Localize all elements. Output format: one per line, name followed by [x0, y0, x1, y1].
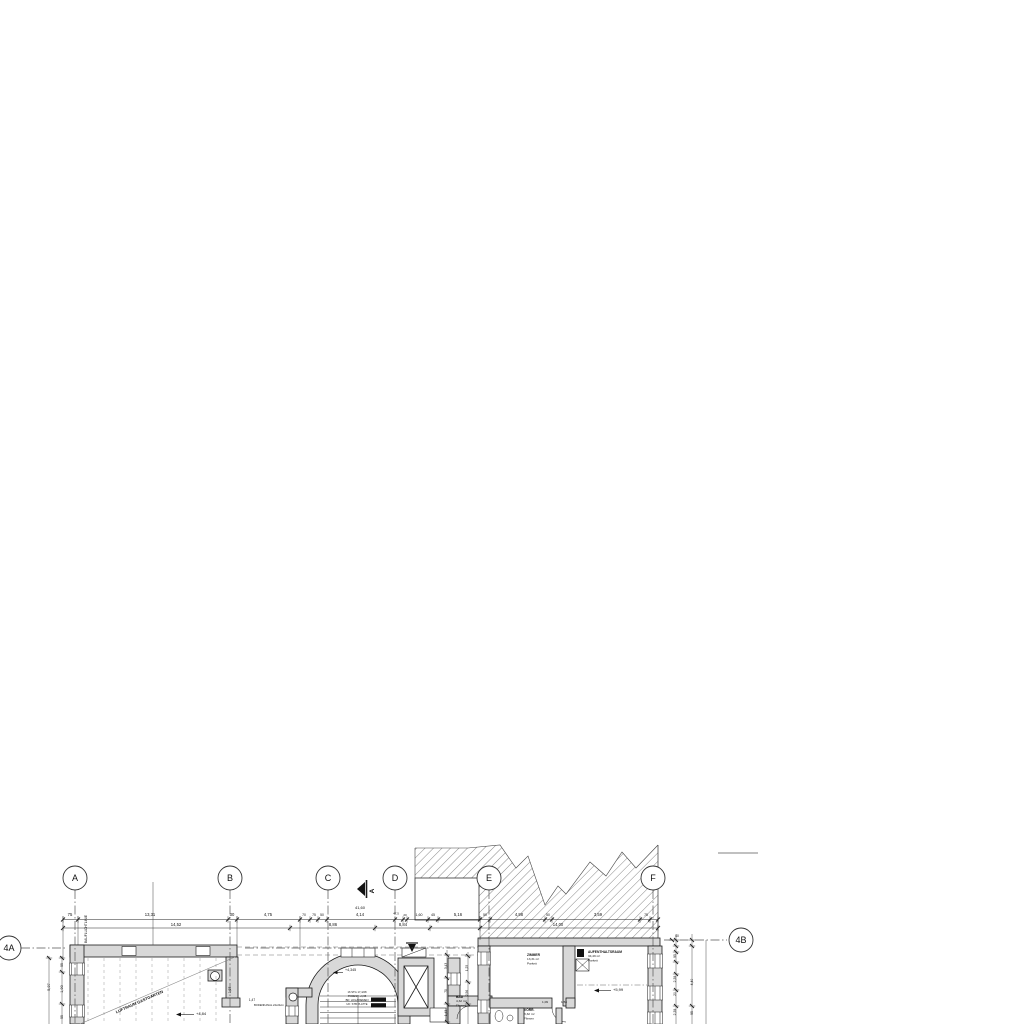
annotation-label: BODENKANAL 24x24cm — [254, 1003, 285, 1007]
building-notch — [415, 878, 479, 920]
annotation-label: LUFTRAUM GASTGARTEN — [115, 989, 164, 1014]
grid-row-4B-label: 4B — [735, 935, 746, 945]
flue — [577, 949, 584, 957]
floor-plan-drawing: 7513,31304,757075504,1447,5201,60455,165… — [0, 0, 1024, 1024]
annotation-label: +4,84 — [196, 1011, 207, 1016]
annotation-label: 55 — [60, 963, 64, 967]
wall-fitting — [122, 947, 136, 956]
column-symbol — [211, 972, 220, 981]
room-floor: Fliesen — [456, 1003, 466, 1007]
annotation-label: BD: HOLZRIEMEN — [346, 998, 369, 1002]
annotation-label: 20 — [403, 913, 407, 917]
right-wing — [478, 938, 663, 1024]
annotation-label: 1,47 — [249, 998, 255, 1002]
annotation-label: 4,98 — [515, 912, 524, 917]
annotation-label: 4,14 — [356, 912, 365, 917]
annotation-label: +5,99 — [613, 987, 624, 992]
grid-column-E-label: E — [486, 873, 492, 883]
annotation-label: 13,31 — [145, 912, 156, 917]
annotation-label: 1,09 — [542, 1000, 548, 1004]
annotation-label: 30 — [230, 912, 235, 917]
annotation-label: 95 — [690, 1011, 694, 1015]
annotation-label: 50 — [546, 913, 550, 917]
annotation-label: 1,25 — [465, 965, 469, 971]
annotation-label: 14,52 — [171, 922, 182, 927]
annotation-label: PODEST +4,35 — [348, 994, 367, 998]
annotation-label: 8,86 — [329, 922, 338, 927]
stair-note-chip — [371, 998, 386, 1002]
annotation-label: 75 — [68, 912, 73, 917]
grid-column-A-label: A — [72, 873, 78, 883]
annotation-label: 1,43 — [444, 1010, 448, 1016]
annotation-label: 5,97 — [47, 983, 51, 990]
section-marker-letter: A — [369, 888, 376, 893]
floor-plan-sheet: 7513,31304,757075504,1447,5201,60455,165… — [0, 0, 1024, 1024]
annotation-label: 1,90 — [60, 985, 64, 992]
grid-column-F-label: F — [650, 873, 656, 883]
annotation-label: 20 — [673, 992, 677, 996]
annotation-label: 2,56 — [465, 990, 469, 996]
annotation-label: 47,5 — [393, 912, 399, 916]
annotation-label: 5,16 — [454, 912, 463, 917]
annotation-label: 1,54 — [561, 1000, 567, 1004]
annotation-label: 3,43 — [444, 963, 448, 969]
annotation-label: 45 — [431, 913, 435, 917]
annotation-label: 1,97 — [228, 987, 232, 994]
annotation-label: 2,39 — [673, 976, 677, 983]
annotation-label: 14,00 — [553, 922, 564, 927]
annotation-label: 2,39 — [673, 1009, 677, 1016]
grid-row-4A-label: 4A — [3, 943, 14, 953]
annotation-label: 1,60 — [416, 913, 423, 917]
annotation-label: 8,84 — [399, 922, 408, 927]
annotation-label: 41,60 — [355, 905, 366, 910]
annotation-label: 75 — [644, 913, 648, 917]
annotation-label: 95 — [673, 954, 677, 958]
room-floor: Parkett — [588, 958, 598, 962]
annotation-label: UK: STB PLATTE — [346, 1002, 367, 1006]
room-floor: Parkett — [527, 961, 537, 965]
existing-building-hatch — [415, 845, 658, 938]
column-symbol — [289, 993, 297, 1001]
annotation-label: 3,59 — [594, 912, 603, 917]
annotation-label: 40 — [675, 934, 679, 938]
annotation-label: 55 — [60, 1015, 64, 1019]
annotation-label: 70 — [302, 913, 306, 917]
toilet — [495, 1011, 503, 1022]
grid-column-D-label: D — [392, 873, 399, 883]
annotation-label: +4,345 — [345, 968, 356, 972]
section-cut-marker — [357, 880, 367, 898]
annotation-label: 70 — [444, 989, 448, 993]
annotation-label: 50 — [320, 913, 324, 917]
window — [648, 954, 663, 1024]
annotation-label: 16 STG 17,4/28 — [348, 990, 367, 994]
stair-note-chip — [371, 1003, 386, 1007]
annotation-label: 4,40 — [690, 979, 694, 986]
annotation-label: 4,75 — [264, 912, 273, 917]
stair-tower — [286, 948, 411, 1024]
grid-column-B-label: B — [227, 873, 233, 883]
grid-column-C-label: C — [325, 873, 332, 883]
terrace-walls — [70, 945, 241, 1024]
annotation-label: BAUFLUCHTLINIE — [84, 914, 88, 943]
elevator-shaft — [398, 948, 446, 1022]
wall-fitting — [196, 947, 210, 956]
annotation-label: 50 — [483, 913, 487, 917]
sink — [507, 1015, 513, 1021]
room-floor: Fliesen — [524, 1016, 534, 1020]
annotation-label: 75 — [312, 913, 316, 917]
